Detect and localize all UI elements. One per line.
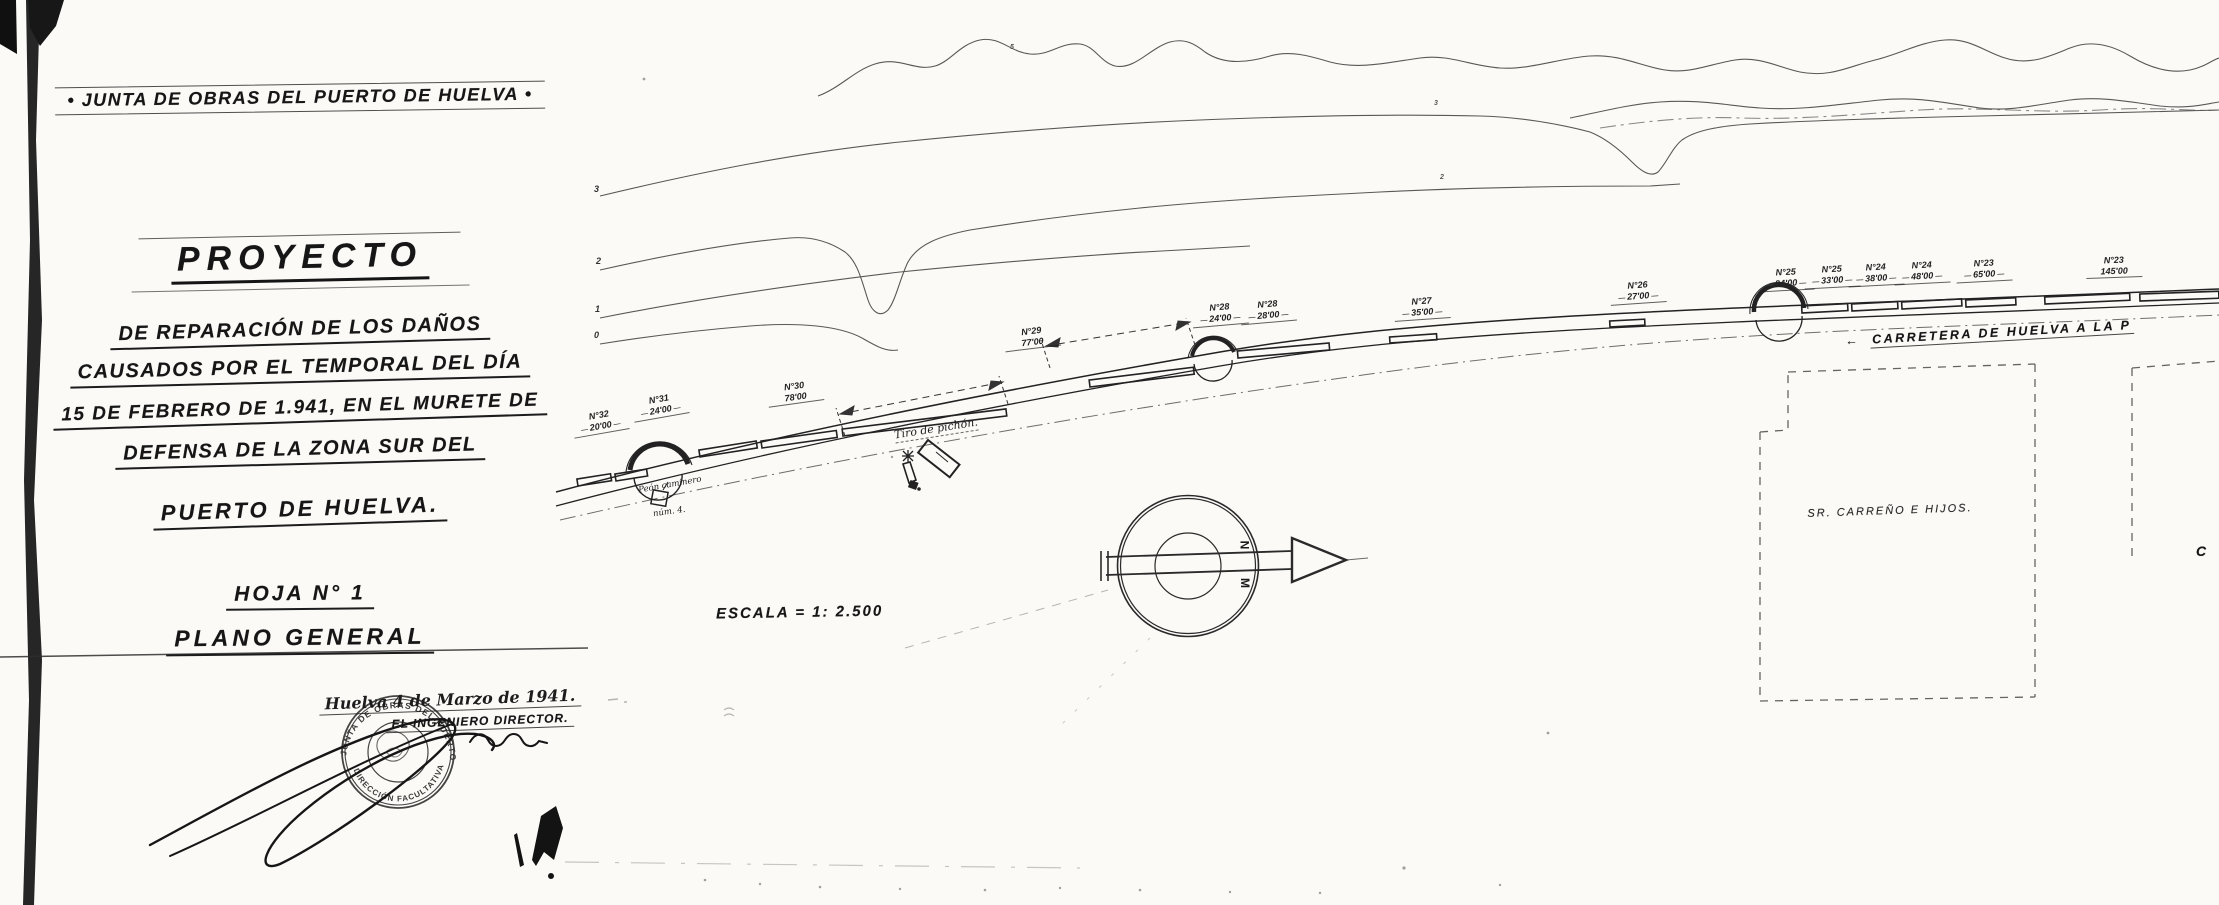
property-boundary-2 [2132,361,2219,368]
sheet-number: HOJA N° 1 [226,581,374,611]
wall-section-label: N°28 28'00 [1239,297,1297,326]
faint-construction-marks [608,78,1549,895]
contour-line-upper-right [1570,99,2219,118]
contour-spot-label: 5 [1010,44,1014,51]
contour-label-3: 3 [594,184,599,194]
wall-section-label: N°26 27'00 [1609,278,1667,306]
contour-label-2: 2 [596,256,601,266]
wall-section-label: N°27 35'00 [1393,294,1451,322]
wall-section-label: N°24 48'00 [1893,259,1950,286]
scale-label: ESCALA = 1: 2.500 [716,603,884,623]
road-direction-arrow: ← [1845,333,1861,348]
contour-line-top [818,39,2219,96]
contour-line-1 [600,246,1250,318]
contour-spot-label: 2 [1440,174,1444,181]
scanned-plan-sheet: JUNTA DE OBRAS DEL PUERTO DE HUELVA DIRE… [0,0,2219,905]
property-boundary-dashed [1760,361,2219,701]
contour-line-2 [600,184,1680,314]
wall-section-label: N°23 65'00 [1955,257,2012,284]
contour-label-1: 1 [595,304,600,314]
contour-spot-label: 3 [1434,100,1438,107]
project-title: PROYECTO [170,235,429,284]
contour-line-3 [600,110,2219,196]
edge-cropped-letter: C [2196,543,2206,559]
road-south-edge-dashdot [560,315,2219,520]
compass-letter-m: M [1238,578,1252,588]
wall-section-label: N°23 145'00 [2086,254,2143,279]
wall-bulge-2 [1194,360,1232,381]
sheet-title-row: PLANO GENERAL [10,621,590,658]
contour-line-0 [600,325,898,351]
compass-arrowhead [1292,538,1346,582]
compass-rose [1101,496,1368,637]
ink-blot [514,806,1080,879]
sheet-title: PLANO GENERAL [166,623,434,657]
contour-label-0: 0 [594,330,599,340]
compass-letter-n: N [1237,541,1251,550]
wall-section-length: 145'00 [2086,265,2142,279]
